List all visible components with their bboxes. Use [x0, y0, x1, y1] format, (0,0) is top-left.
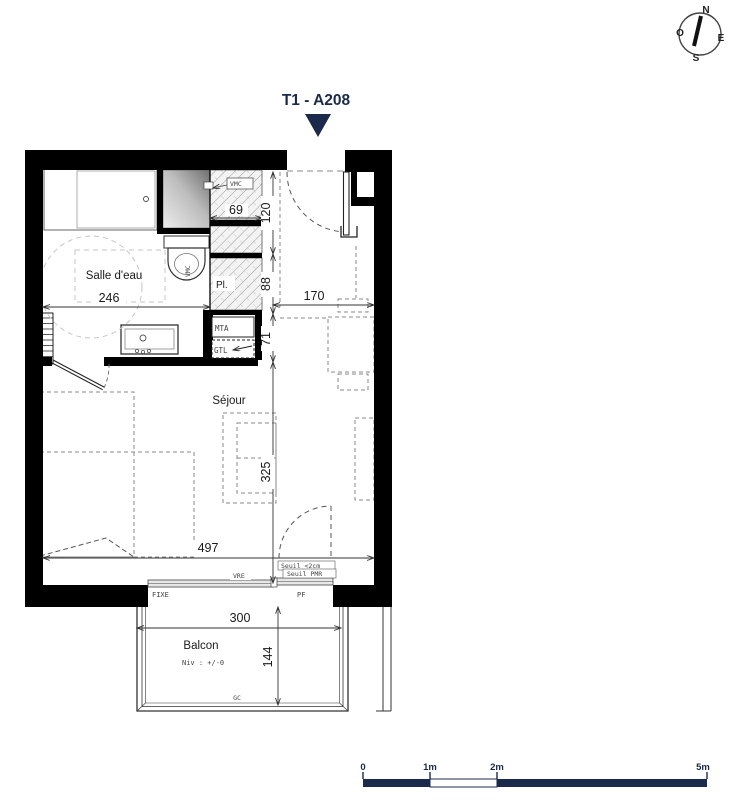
- washbasin: [121, 325, 178, 354]
- shower-corner-panel: [163, 170, 210, 228]
- wall-left: [25, 150, 43, 607]
- scale-5m-label: 5m: [696, 762, 710, 773]
- wall-bottom-right: [333, 585, 392, 607]
- dim-497: 497: [198, 541, 219, 555]
- toilet-vmc-label: VMC: [184, 265, 192, 277]
- mta-box: MTA: [212, 317, 254, 337]
- dim-144: 144: [261, 647, 275, 668]
- vmc-label: VMC: [230, 180, 242, 188]
- dim-71: 71: [259, 332, 273, 346]
- wall-top: [25, 150, 287, 170]
- dim-300: 300: [230, 611, 251, 625]
- floorplan-page: T1 - A208 N O E S Pl. VMC: [0, 0, 734, 800]
- dim-69: 69: [229, 203, 243, 217]
- dim-120: 120: [259, 203, 273, 224]
- closet-label: Pl.: [216, 280, 228, 291]
- scale-2m-label: 2m: [490, 762, 504, 773]
- entry-door-leaf: [344, 172, 350, 235]
- gtl-box: GTL: [212, 340, 254, 358]
- dim-246: 246: [99, 291, 120, 305]
- living-label: Séjour: [212, 395, 245, 407]
- niv-label: Niv : +/-0: [182, 659, 224, 667]
- gc-label: GC: [233, 694, 241, 702]
- bathroom-label: Salle d'eau: [86, 270, 143, 282]
- shower: [44, 169, 157, 230]
- mta-label: MTA: [215, 324, 229, 333]
- wall-right: [374, 172, 392, 607]
- compass-south-label: S: [693, 53, 700, 64]
- gtl-label: GTL: [214, 346, 228, 355]
- pf-label: PF: [297, 591, 305, 599]
- dim-170: 170: [304, 289, 325, 303]
- shower-drain-icon: [144, 197, 149, 202]
- dim-88: 88: [259, 277, 273, 291]
- compass-east-label: E: [718, 33, 725, 44]
- floorplan-svg: T1 - A208 N O E S Pl. VMC: [0, 0, 734, 800]
- scale-1m-label: 1m: [423, 762, 437, 773]
- compass-west-label: O: [676, 28, 684, 39]
- balcony-label: Balcon: [183, 640, 218, 652]
- wall-top-right: [345, 150, 392, 172]
- fixe-label: FIXE: [152, 591, 169, 599]
- wall-bathroom: [110, 357, 213, 366]
- compass-north-label: N: [702, 5, 709, 16]
- wall-bottom-left: [25, 585, 148, 607]
- background: [0, 0, 734, 800]
- dim-325: 325: [259, 462, 273, 483]
- radiator: [42, 313, 53, 364]
- seuil-pmr-label: Seuil PMR: [287, 570, 322, 578]
- vre-label: VRE: [233, 572, 245, 580]
- page-title: T1 - A208: [282, 92, 351, 109]
- technical-shafts: Pl.: [210, 170, 262, 310]
- scale-0-label: 0: [360, 762, 365, 773]
